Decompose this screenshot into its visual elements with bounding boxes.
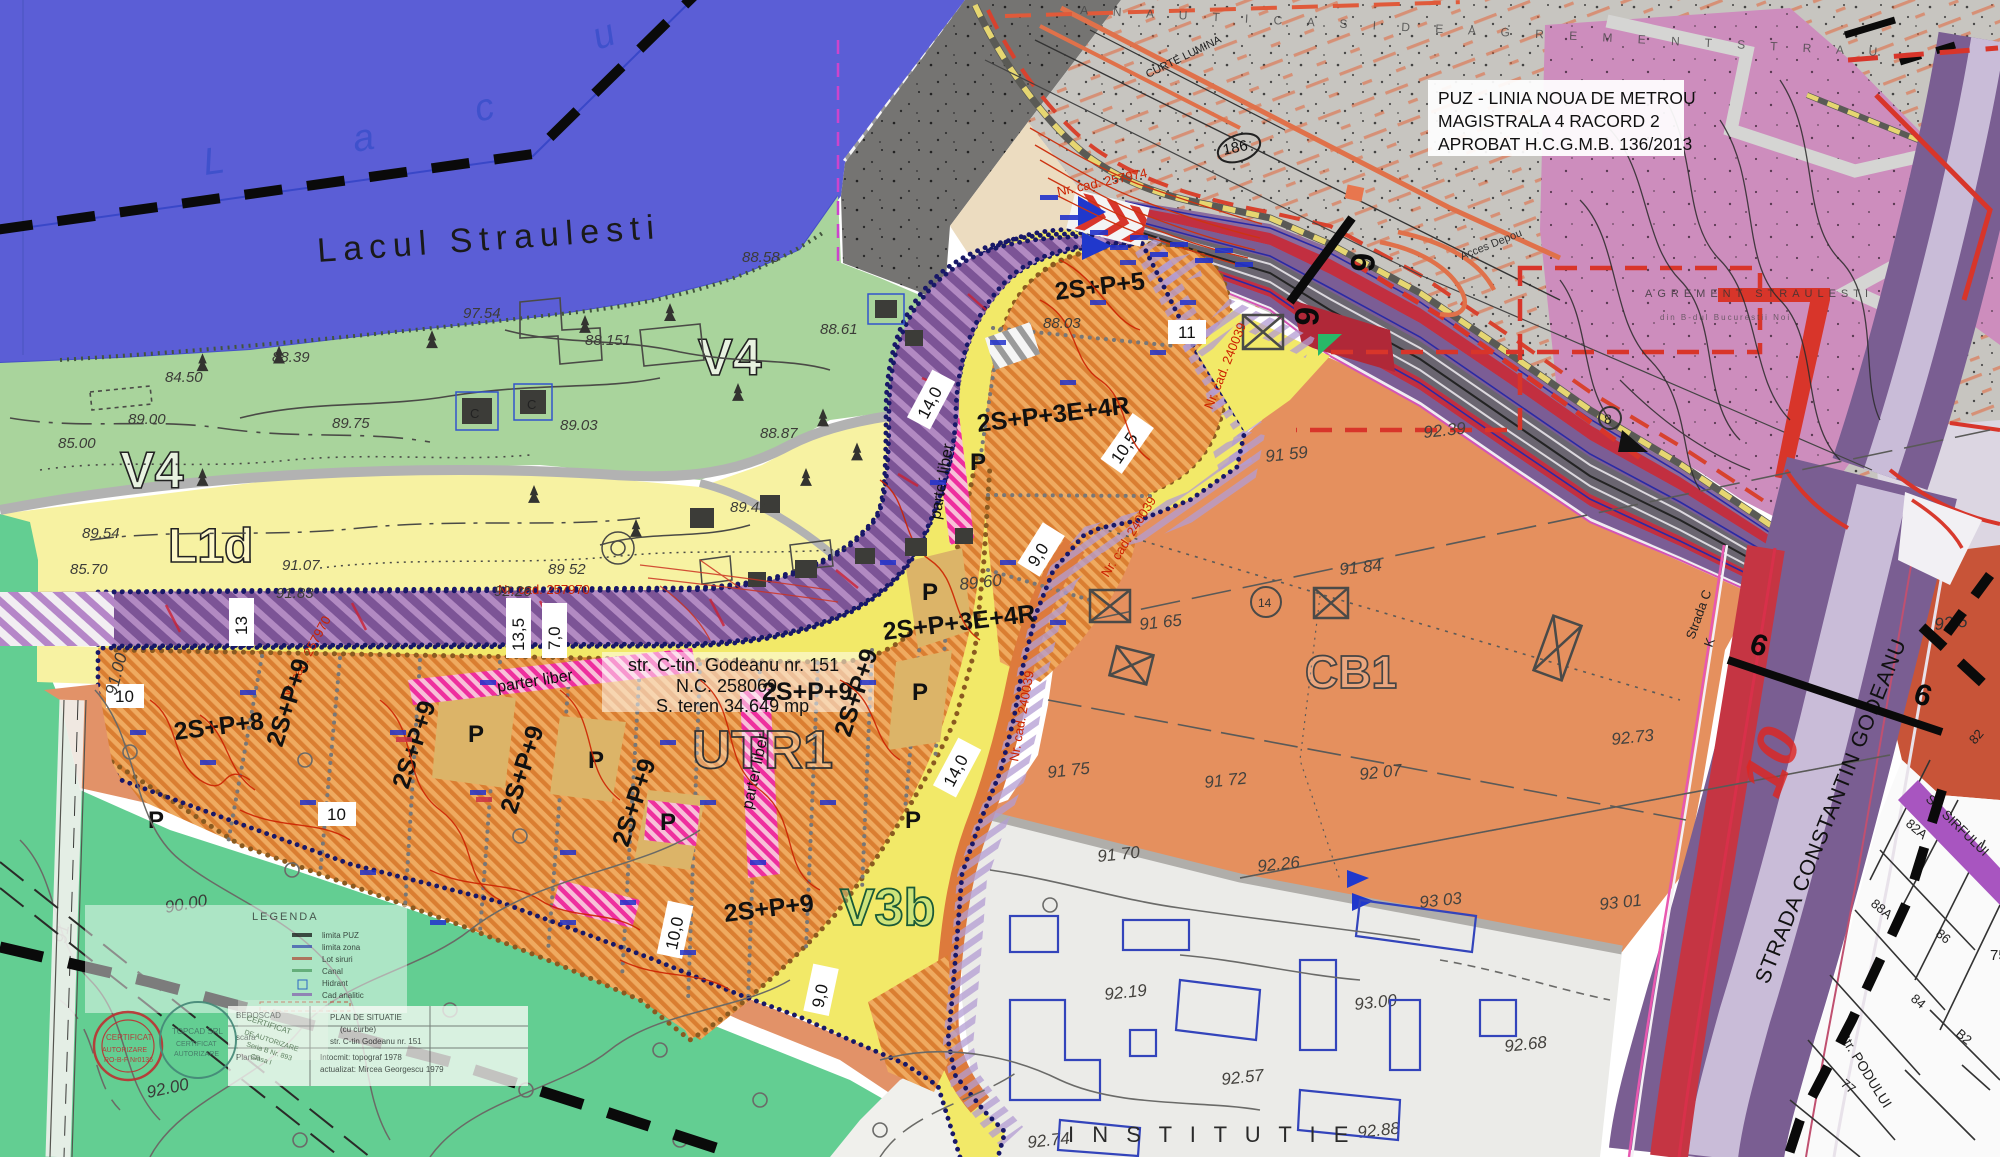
- svg-text:Canal: Canal: [322, 967, 343, 976]
- svg-text:7,0: 7,0: [545, 626, 564, 650]
- svg-text:Lot siruri: Lot siruri: [322, 955, 353, 964]
- svg-text:89.54: 89.54: [82, 525, 120, 542]
- svg-text:V4: V4: [120, 442, 184, 500]
- svg-text:Cad analitic: Cad analitic: [322, 991, 364, 1000]
- svg-text:(cu curbe): (cu curbe): [340, 1025, 376, 1034]
- svg-text:6: 6: [1342, 251, 1382, 273]
- svg-text:10: 10: [327, 805, 346, 824]
- svg-text:PUZ - LINIA NOUA DE METROU: PUZ - LINIA NOUA DE METROU: [1438, 88, 1696, 108]
- svg-text:CERTIFICAT: CERTIFICAT: [106, 1033, 152, 1042]
- svg-text:8: 8: [1604, 411, 1612, 427]
- svg-text:92.26: 92.26: [494, 583, 532, 600]
- svg-text:91.83: 91.83: [276, 585, 314, 602]
- svg-text:89.00: 89.00: [128, 411, 166, 428]
- svg-text:str. C-tin Godeanu nr. 151: str. C-tin Godeanu nr. 151: [330, 1037, 422, 1046]
- svg-text:85.00: 85.00: [58, 435, 96, 452]
- svg-text:P: P: [905, 807, 921, 834]
- svg-text:88.03: 88.03: [1043, 315, 1081, 332]
- svg-text:Hidrant: Hidrant: [322, 979, 349, 988]
- svg-text:AUTORIZARE: AUTORIZARE: [102, 1047, 147, 1054]
- svg-text:C: C: [470, 406, 479, 421]
- svg-text:RO-B-F Nr0136: RO-B-F Nr0136: [104, 1057, 153, 1064]
- svg-text:88.151: 88.151: [585, 332, 631, 349]
- svg-text:P: P: [468, 721, 484, 748]
- svg-text:88.58: 88.58: [742, 249, 780, 266]
- svg-text:I N S T I T U T I E: I N S T I T U T I E: [1068, 1122, 1354, 1147]
- svg-text:P: P: [912, 679, 928, 706]
- svg-text:V3b: V3b: [840, 879, 935, 937]
- svg-text:13,5: 13,5: [509, 618, 528, 651]
- svg-text:88.87: 88.87: [760, 425, 798, 442]
- svg-text:L1d: L1d: [168, 520, 253, 573]
- svg-text:89.03: 89.03: [560, 417, 598, 434]
- svg-text:11: 11: [1178, 323, 1196, 342]
- svg-text:P: P: [922, 579, 938, 606]
- svg-text:P: P: [588, 747, 604, 774]
- svg-text:din B-dul Bucurestii Noi: din B-dul Bucurestii Noi: [1660, 313, 1791, 322]
- svg-text:limita PUZ: limita PUZ: [322, 931, 359, 940]
- svg-text:AUTORIZARE: AUTORIZARE: [174, 1051, 219, 1058]
- svg-text:PLAN DE SITUATIE: PLAN DE SITUATIE: [330, 1013, 402, 1022]
- svg-text:P: P: [660, 809, 676, 836]
- svg-text:75: 75: [1990, 947, 2000, 964]
- svg-text:88.61: 88.61: [820, 321, 858, 338]
- svg-text:13: 13: [232, 616, 251, 635]
- svg-text:89.44: 89.44: [730, 499, 768, 516]
- svg-text:14: 14: [1258, 596, 1272, 610]
- svg-text:2S+P+9: 2S+P+9: [762, 678, 852, 706]
- svg-text:89 52: 89 52: [548, 561, 586, 578]
- svg-text:84.50: 84.50: [165, 369, 203, 386]
- svg-text:89.75: 89.75: [332, 415, 370, 432]
- svg-text:6: 6: [1286, 305, 1326, 327]
- svg-text:P: P: [970, 449, 986, 476]
- svg-text:AGREMENT STRAULESTI: AGREMENT STRAULESTI: [1645, 288, 1873, 300]
- svg-text:Intocmit: topograf 1978: Intocmit: topograf 1978: [320, 1053, 402, 1062]
- svg-text:limita zona: limita zona: [322, 943, 361, 952]
- svg-text:CERTIFICAT: CERTIFICAT: [176, 1041, 217, 1048]
- svg-text:LEGENDA: LEGENDA: [252, 911, 319, 923]
- svg-text:actualizat: Mircea Georgescu 1: actualizat: Mircea Georgescu 1979: [320, 1065, 444, 1074]
- svg-text:97.54: 97.54: [463, 305, 501, 322]
- svg-text:CB1: CB1: [1305, 646, 1397, 698]
- svg-text:C: C: [527, 397, 536, 412]
- svg-text:str. C-tin. Godeanu nr. 151: str. C-tin. Godeanu nr. 151: [628, 655, 839, 675]
- svg-text:91.07: 91.07: [282, 557, 320, 574]
- svg-text:APROBAT H.C.G.M.B. 136/2013: APROBAT H.C.G.M.B. 136/2013: [1438, 134, 1692, 154]
- svg-text:MAGISTRALA 4 RACORD 2: MAGISTRALA 4 RACORD 2: [1438, 111, 1660, 131]
- svg-text:85.70: 85.70: [70, 561, 108, 578]
- svg-text:TOPCAD SRL: TOPCAD SRL: [172, 1027, 224, 1036]
